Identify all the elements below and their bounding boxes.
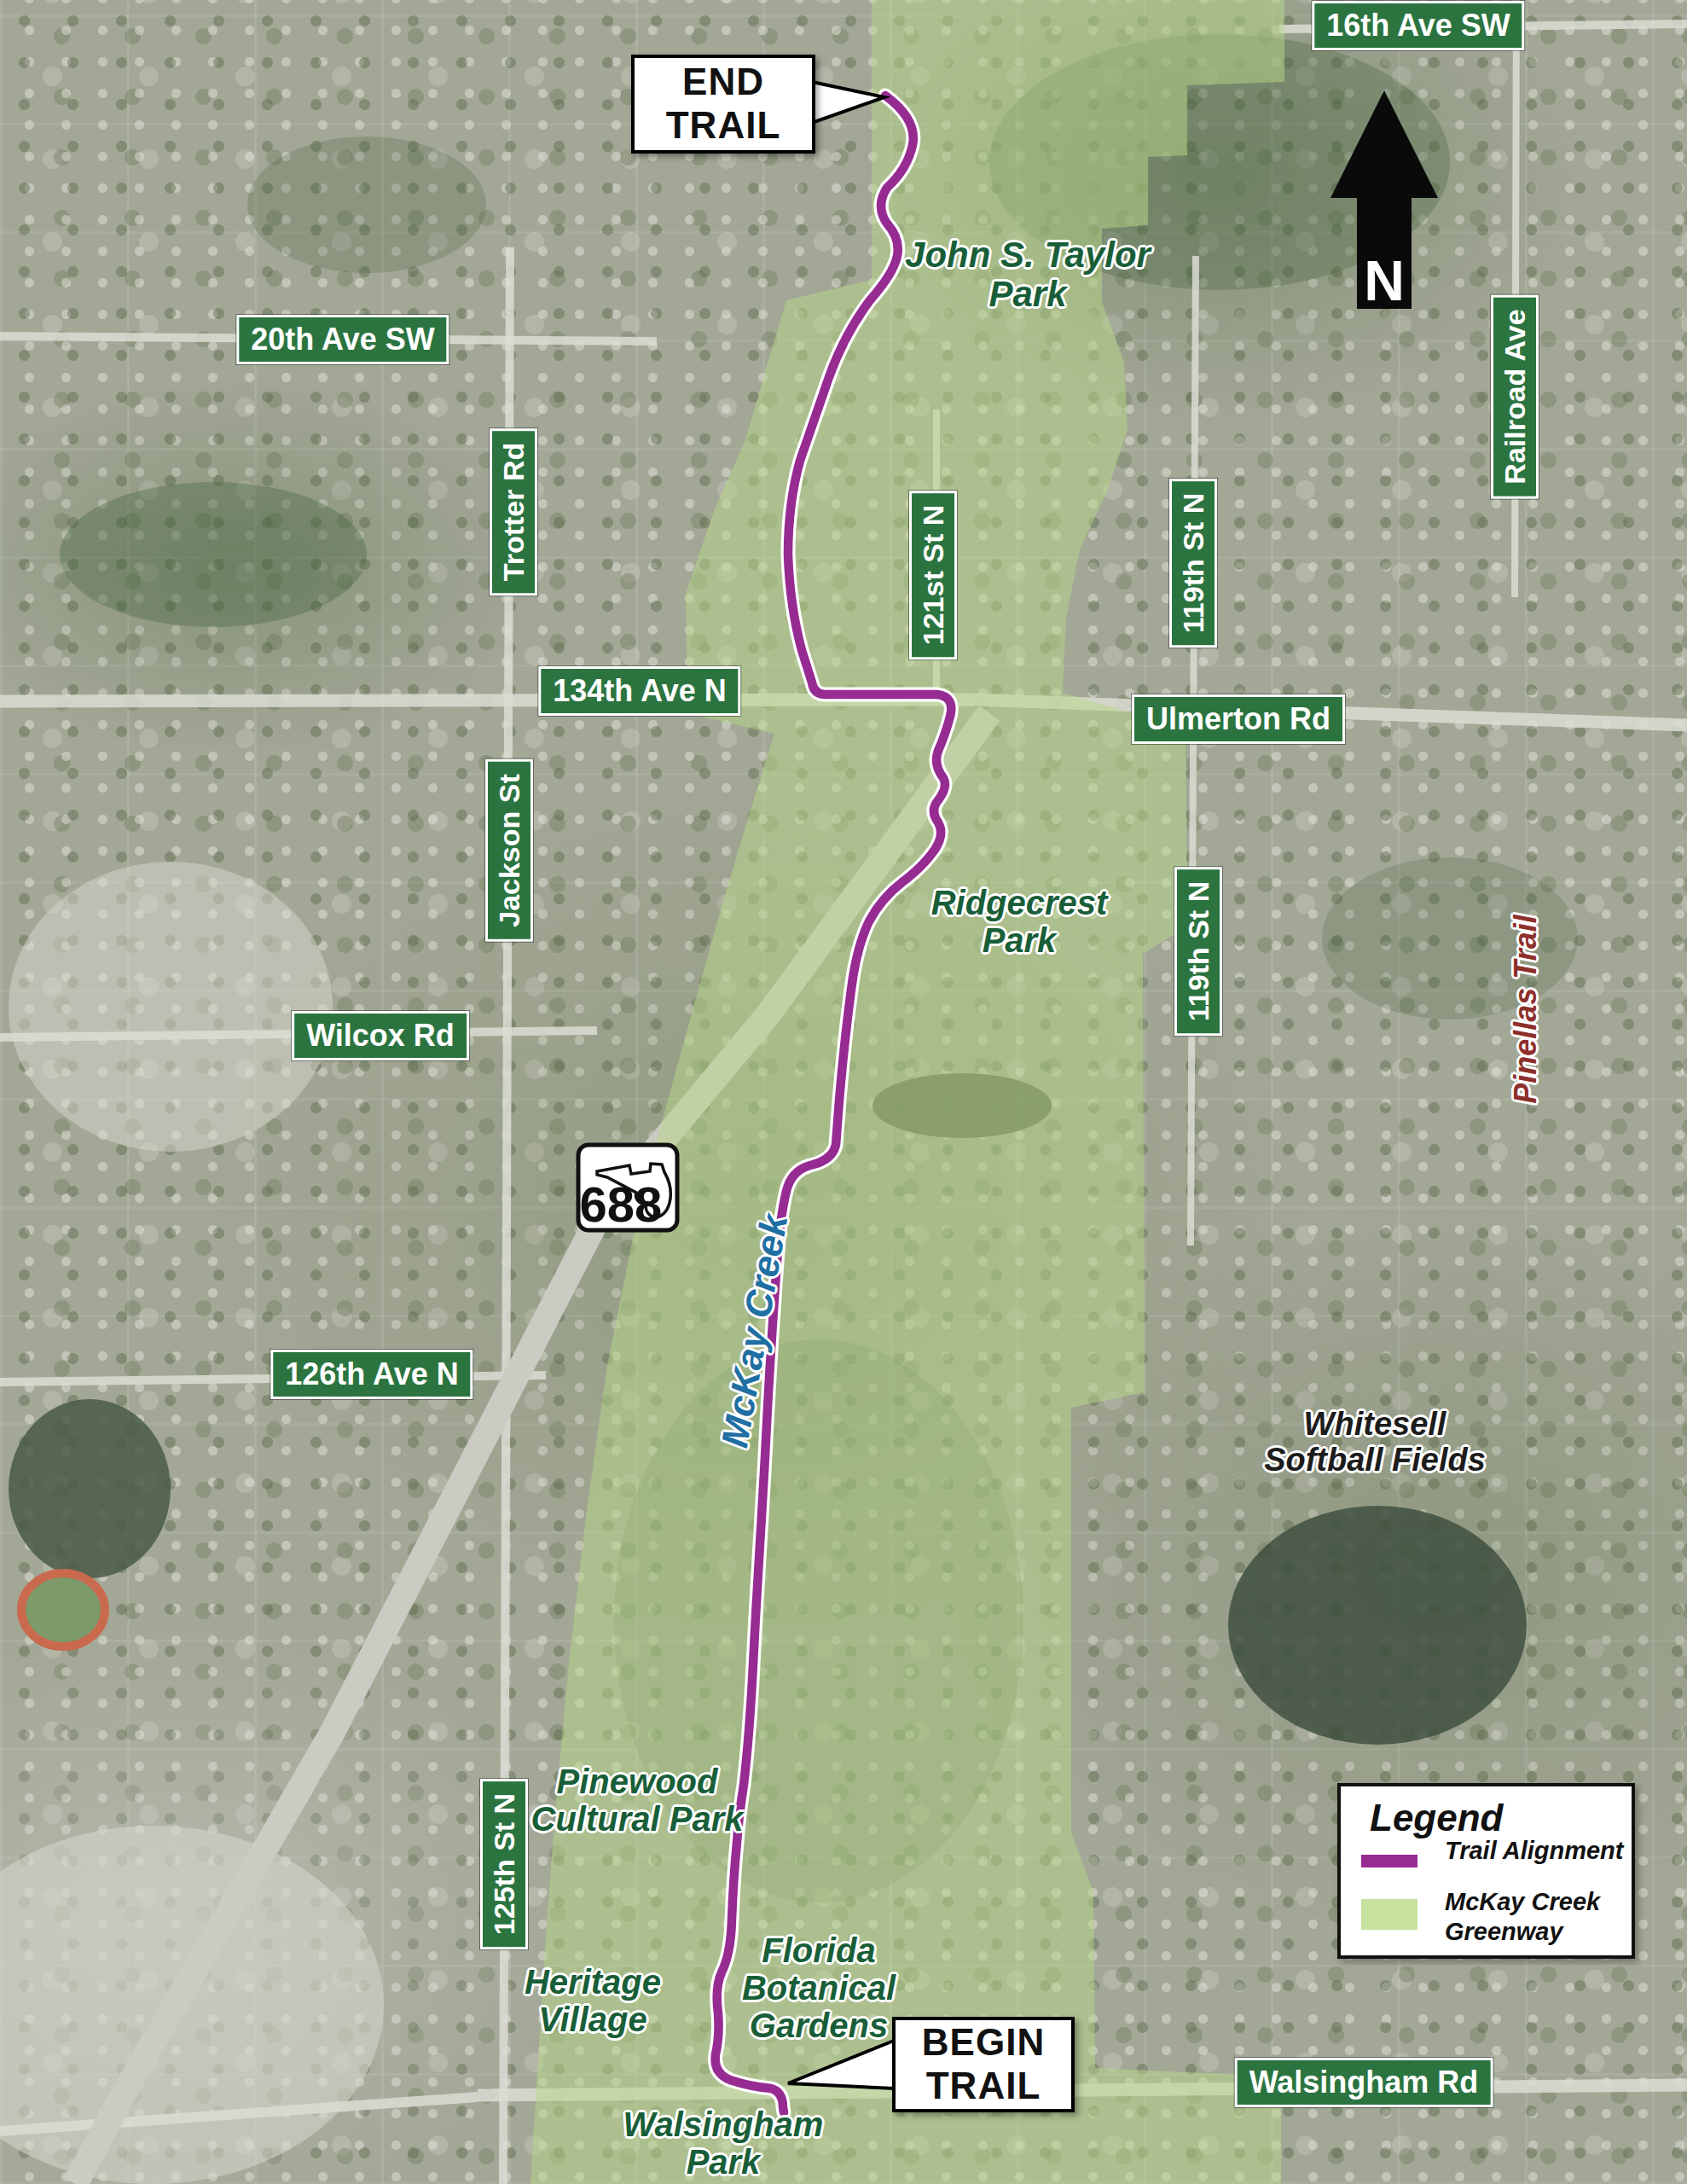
place-label-ridgecrest-park: Ridgecrest Park (931, 884, 1108, 959)
place-label-line: Softball Fields (1264, 1443, 1486, 1478)
callout-line: TRAIL (666, 104, 781, 148)
place-label-line: Cultural Park (531, 1800, 744, 1838)
road-badge-railroad-ave: Railroad Ave (1491, 294, 1539, 498)
road-badge-label: 16th Ave SW (1326, 8, 1510, 43)
place-label-heritage-village: Heritage Village (525, 1963, 661, 2038)
place-label-line: John S. Taylor (905, 235, 1151, 275)
place-label-walsingham-park: Walsingham Park (623, 2106, 824, 2181)
callout-line: END (682, 61, 764, 104)
road-badge-walsingham-rd: Walsingham Rd (1235, 2058, 1493, 2107)
road-badge-label: Jackson St (493, 774, 525, 927)
trail-alignment-swatch (1361, 1855, 1417, 1867)
road-badge-121st-st-n: 121st St N (909, 491, 957, 659)
place-label-line: Park (931, 921, 1108, 959)
road-badge-ulmerton-rd: Ulmerton Rd (1132, 694, 1345, 744)
place-label-line: Park (905, 275, 1151, 314)
north-arrow-label: N (1364, 249, 1405, 312)
place-label-line: Village (525, 2001, 661, 2038)
legend-item-mckay-creek-greenway: McKay Creek Greenway (1445, 1887, 1600, 1947)
place-label-line: Pinellas Trail (1509, 915, 1543, 1103)
place-label-line: Walsingham (623, 2106, 824, 2143)
place-label-line: Botanical (742, 1969, 896, 2007)
legend: Legend Trail Alignment McKay Creek Green… (1337, 1783, 1635, 1959)
place-label-pinellas-trail: Pinellas Trail (1509, 915, 1543, 1103)
road-badge-119th-st-n-upper: 119th St N (1169, 479, 1217, 648)
place-label-whitesell-softball-fields: Whitesell Softball Fields (1264, 1407, 1486, 1478)
callout-line: TRAIL (926, 2065, 1041, 2108)
road-badge-label: Railroad Ave (1499, 309, 1531, 484)
greenway-swatch (1361, 1899, 1417, 1930)
road-badge-trotter-rd: Trotter Rd (490, 428, 537, 595)
road-badge-119th-st-n-lower: 119th St N (1174, 867, 1222, 1036)
callout-line: BEGIN (922, 2021, 1045, 2065)
mckay-creek-greenway-area (530, 0, 1284, 2184)
place-label-pinewood-cultural-park: Pinewood Cultural Park (531, 1763, 744, 1838)
begin-trail-callout: BEGIN TRAIL (892, 2017, 1075, 2112)
place-label-line: Park (623, 2143, 824, 2181)
road-badge-label: 125th St N (488, 1793, 520, 1935)
place-label-line: Heritage (525, 1963, 661, 2001)
road-badge-16th-ave-sw: 16th Ave SW (1312, 1, 1524, 50)
road-badge-label: 119th St N (1182, 881, 1215, 1021)
end-trail-callout: END TRAIL (631, 55, 815, 154)
running-track (21, 1573, 105, 1647)
legend-title: Legend (1370, 1797, 1632, 1839)
place-label-john-s-taylor-park: John S. Taylor Park (905, 235, 1151, 314)
legend-item-label: McKay Creek (1445, 1887, 1600, 1917)
road-badge-label: Wilcox Rd (306, 1018, 455, 1053)
road-badge-label: Ulmerton Rd (1146, 701, 1330, 736)
trail-map: N 688 16th Ave SW 20th Ave SW Trotter Rd… (0, 0, 1687, 2184)
place-label-line: Whitesell (1264, 1407, 1486, 1443)
road-badge-126th-ave-n: 126th Ave N (270, 1350, 472, 1399)
road-badge-wilcox-rd: Wilcox Rd (292, 1011, 469, 1060)
road-badge-label: 119th St N (1177, 493, 1209, 633)
legend-item-trail-alignment: Trail Alignment (1445, 1836, 1623, 1866)
route-688-shield-icon: 688 (578, 1145, 677, 1232)
place-label-line: Gardens (742, 2007, 896, 2044)
road-badge-125th-st-n: 125th St N (480, 1779, 528, 1949)
route-shield-number: 688 (580, 1176, 663, 1232)
road-badge-label: 134th Ave N (553, 673, 726, 708)
road-badge-label: 20th Ave SW (251, 322, 434, 357)
road-badge-label: Trotter Rd (497, 443, 530, 581)
place-label-line: Ridgecrest (931, 884, 1108, 921)
road-badge-134th-ave-n: 134th Ave N (538, 666, 740, 716)
legend-item-label: Trail Alignment (1445, 1836, 1623, 1866)
place-label-line: Florida (742, 1931, 896, 1969)
road-badge-label: Walsingham Rd (1249, 2065, 1479, 2100)
legend-item-label: Greenway (1445, 1917, 1600, 1947)
place-label-line: Pinewood (531, 1763, 744, 1800)
place-label-florida-botanical-gardens: Florida Botanical Gardens (742, 1931, 896, 2044)
road-badge-20th-ave-sw: 20th Ave SW (236, 315, 449, 364)
road-badge-jackson-st: Jackson St (485, 759, 533, 942)
road-badge-label: 126th Ave N (285, 1356, 458, 1391)
road-badge-label: 121st St N (917, 505, 949, 645)
